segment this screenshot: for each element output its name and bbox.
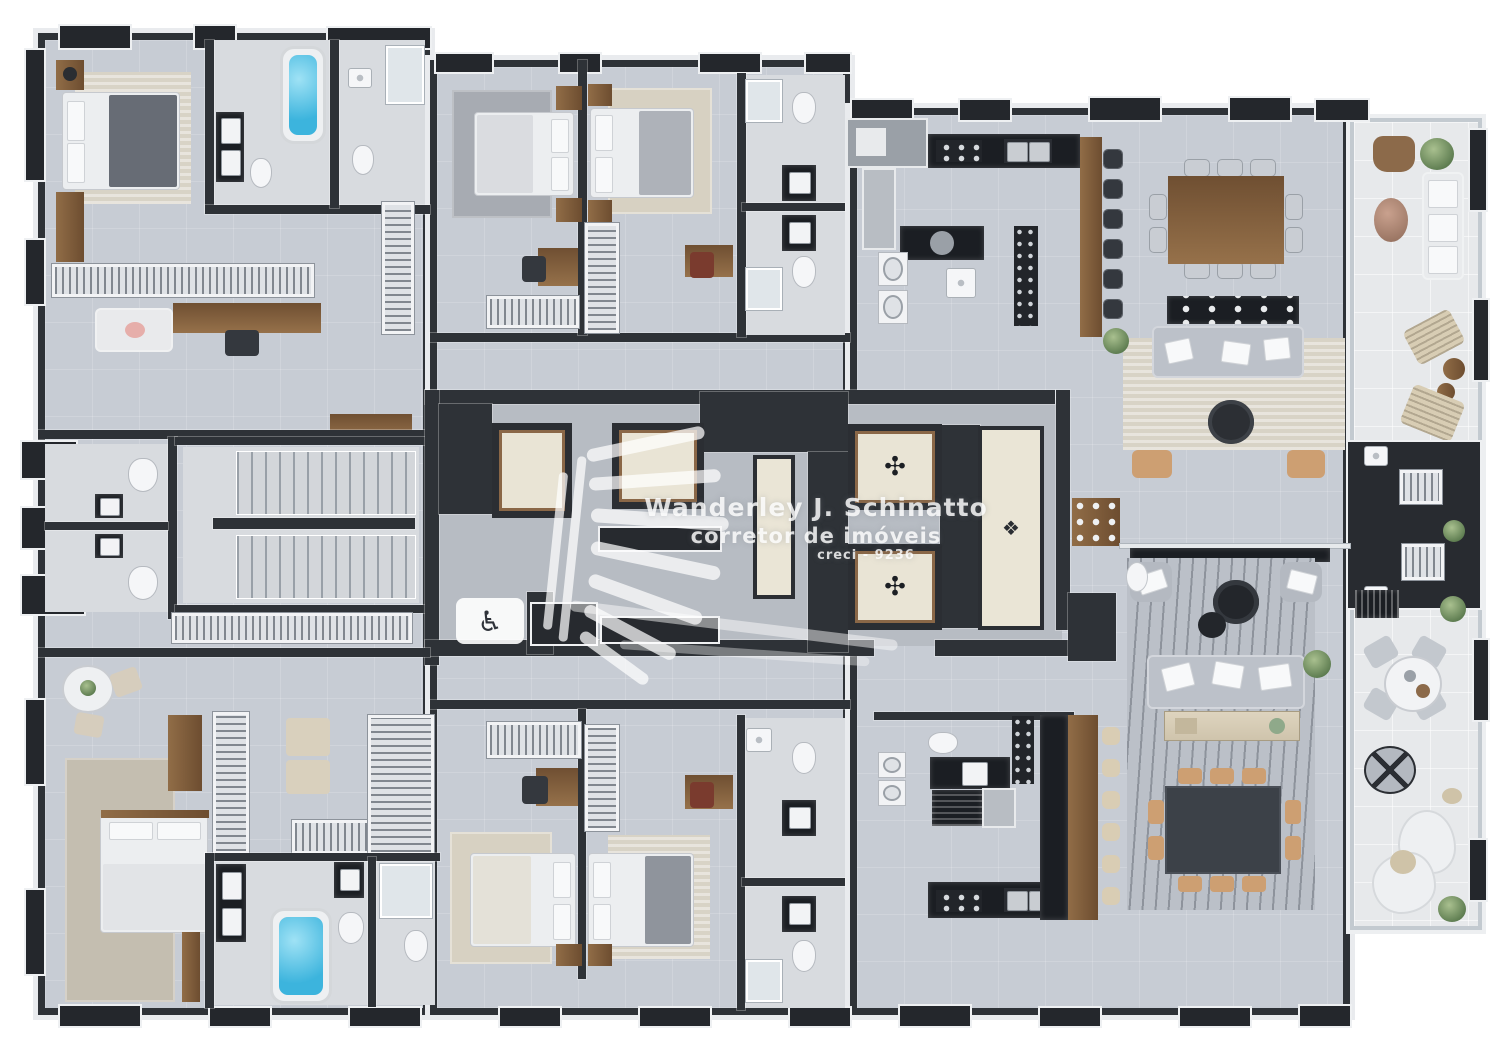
core-wall (700, 392, 848, 452)
wardrobe-rail (487, 722, 581, 758)
pot (930, 231, 954, 255)
sofa-pillow (1428, 214, 1458, 242)
plant (1438, 896, 1466, 922)
apartment-floor-plan: ✣ ✣ ❖ ♿ (0, 0, 1500, 1050)
wardrobe-rail (487, 296, 579, 328)
blanket (103, 864, 207, 930)
bath-water (279, 917, 323, 995)
sink (222, 908, 242, 936)
vanity (782, 800, 816, 836)
bar-stool (1104, 180, 1122, 198)
bed-master-bottomleft (100, 815, 208, 933)
pouf (286, 760, 330, 794)
wall (38, 648, 430, 657)
pillar (700, 54, 760, 72)
shower (386, 46, 424, 104)
pillar (1470, 130, 1486, 210)
wine-rack (1014, 226, 1038, 326)
bar-stool (1102, 727, 1120, 745)
dresser (56, 192, 84, 262)
pillow (595, 115, 613, 151)
utility-counter (930, 757, 1010, 789)
toilet (250, 158, 272, 188)
service-grill (1402, 544, 1444, 580)
pillar (500, 1008, 560, 1026)
daybed (95, 308, 173, 352)
plant (1303, 650, 1331, 678)
wardrobe-rail (213, 712, 249, 854)
sofa-pillow (1161, 662, 1196, 693)
sink (340, 869, 360, 891)
hall-motif-icon: ❖ (1002, 516, 1020, 540)
desk-chair (690, 782, 714, 808)
sofa (1147, 655, 1305, 709)
pillar (1040, 1008, 1100, 1026)
sink (221, 150, 241, 176)
pillar (790, 1008, 850, 1026)
lounge-chair (1280, 562, 1322, 602)
washer-drum (883, 257, 903, 281)
wall (205, 853, 440, 861)
dining-chair (1251, 262, 1275, 278)
pillow (593, 862, 611, 898)
bar-stool (1104, 300, 1122, 318)
plant (1103, 328, 1129, 354)
pillow (67, 101, 85, 141)
bar-back-counter (1040, 715, 1068, 920)
storage-cabinet (172, 613, 412, 643)
pillar (1180, 1008, 1250, 1026)
wardrobe-rail (52, 264, 314, 297)
bbq-grill (1355, 590, 1399, 618)
pillar (60, 26, 130, 48)
plant (1440, 596, 1466, 622)
console-decor (1269, 718, 1285, 734)
sink (962, 762, 988, 786)
vanity (216, 864, 246, 942)
pillar (1090, 98, 1160, 120)
kitchen-island (932, 790, 982, 826)
wall (430, 700, 850, 709)
blanket (639, 111, 691, 195)
shower (380, 864, 432, 918)
desk-chair (522, 256, 546, 282)
dryer (878, 290, 908, 324)
dining-chair (1148, 800, 1164, 824)
table-decor (1416, 684, 1430, 698)
pillow (593, 904, 611, 940)
wardrobe-rail (368, 715, 434, 855)
dining-chair (1286, 195, 1302, 219)
vanity (782, 165, 816, 201)
pouf (1442, 788, 1462, 804)
bathtub (280, 46, 326, 144)
dining-chair (1210, 768, 1234, 784)
sink (789, 172, 811, 194)
bar-stool (1102, 791, 1120, 809)
microwave (856, 128, 886, 156)
wall (175, 437, 425, 445)
wall (1068, 593, 1116, 661)
dining-chair (1178, 768, 1202, 784)
core-wall (808, 452, 848, 652)
dining-table (1168, 176, 1284, 264)
pillar (1316, 100, 1368, 120)
wall (45, 522, 168, 530)
dining-chair (1185, 262, 1209, 278)
hall-runner-small (753, 455, 795, 599)
toilet (404, 930, 428, 962)
toilet (792, 940, 816, 972)
pillow (109, 822, 153, 840)
dryer-drum (883, 295, 903, 319)
core-wall (940, 425, 980, 628)
chair (73, 712, 104, 739)
bed-topmiddle-2 (590, 108, 694, 198)
nightstand (588, 200, 612, 222)
wardrobe-rail (382, 202, 414, 334)
pouf (286, 718, 330, 756)
elevator-medallion-icon: ✣ (884, 572, 906, 602)
bath-water (289, 55, 317, 135)
stair-flight-lower (237, 536, 415, 598)
pillow (553, 904, 571, 940)
side-table (1443, 358, 1465, 380)
pillar (900, 1006, 970, 1026)
vanity (95, 534, 123, 558)
service-grill (1400, 470, 1442, 504)
sink (100, 538, 120, 556)
bed-topmiddle-1 (474, 112, 574, 196)
dining-chair (1185, 160, 1209, 176)
blanket (645, 856, 691, 944)
fridge (984, 790, 1014, 826)
armchair (1287, 450, 1325, 478)
bar-stool (1102, 855, 1120, 873)
elevator-cab (492, 423, 572, 518)
sink-basin (1007, 891, 1028, 911)
nightstand (56, 60, 84, 90)
wall (742, 203, 845, 211)
nightstand (556, 944, 582, 966)
washer (878, 252, 908, 286)
bed-bottommiddle-1 (470, 853, 576, 947)
sink (222, 872, 242, 900)
sideboard (1167, 296, 1299, 324)
sofa-pillow (1257, 663, 1292, 691)
wardrobe-rail (585, 223, 619, 333)
pillar (960, 100, 1010, 120)
pillar (1230, 98, 1290, 120)
bed-master-topleft (62, 92, 180, 190)
toilet (792, 742, 816, 774)
pink-pillow (125, 322, 145, 338)
bar-stool (1104, 240, 1122, 258)
nightstand (588, 84, 612, 106)
entry-hall-runner: ❖ (978, 426, 1044, 630)
bar-stool (1104, 270, 1122, 288)
dining-chair (1178, 876, 1202, 892)
pillar (1300, 1006, 1350, 1026)
wall (205, 40, 214, 212)
sink (221, 118, 241, 144)
dryer-drum (883, 785, 901, 801)
dining-chair (1242, 876, 1266, 892)
fridge (864, 170, 894, 248)
pillow (553, 862, 571, 898)
pillar (26, 240, 44, 304)
bench (182, 932, 200, 1002)
wine-rack (1012, 716, 1034, 784)
shower (746, 960, 782, 1002)
headboard (101, 810, 209, 818)
door-mat (532, 604, 596, 644)
coffee-table (1208, 400, 1254, 444)
elevator-medallion-icon: ✣ (884, 452, 906, 482)
core-wall (439, 404, 492, 514)
elevator-cab-medallion: ✣ (848, 424, 942, 510)
wardrobe-rail (292, 820, 374, 854)
core-console-table (1072, 498, 1120, 546)
dining-chair (1150, 195, 1166, 219)
core-wall (425, 390, 439, 665)
wall (330, 40, 339, 208)
pouf (1390, 850, 1416, 874)
wall (205, 853, 214, 1008)
dining-table-dark (1165, 786, 1281, 874)
accessible-mat: ♿ (456, 598, 524, 644)
vanity (95, 494, 123, 518)
dining-chair (1286, 228, 1302, 252)
toilet (792, 256, 816, 288)
wall (742, 878, 845, 886)
vanity (782, 896, 816, 932)
stove-burners (936, 890, 982, 912)
pillar (806, 54, 850, 72)
pillar (1474, 640, 1488, 720)
sink (789, 807, 811, 829)
sofa (1152, 326, 1304, 378)
utility-sink (946, 268, 976, 298)
sofa-pillow (1428, 246, 1458, 274)
desk-chair (690, 252, 714, 278)
wall (737, 715, 745, 1010)
service-sink (1364, 446, 1388, 466)
balcony-sofa (1422, 172, 1464, 280)
pillar (26, 890, 44, 974)
toilet (792, 92, 816, 124)
pillar (26, 700, 44, 784)
pillar (1474, 300, 1488, 380)
toilet (128, 566, 158, 600)
sofa-pillow (1428, 180, 1458, 208)
toilet (928, 732, 958, 754)
stove-burners (936, 140, 982, 162)
pillow (157, 822, 201, 840)
sofa-pillow (1221, 340, 1252, 366)
washer (878, 752, 906, 778)
balcony-armchair (1373, 136, 1415, 172)
sink (746, 728, 772, 752)
dresser (168, 715, 202, 791)
cocktail-table (1364, 746, 1416, 794)
pillow (1286, 569, 1318, 595)
kitchen-sink-double (1004, 139, 1052, 163)
wheelchair-icon: ♿ (477, 605, 502, 638)
dining-chair (1210, 876, 1234, 892)
kitchen-island (900, 226, 984, 260)
bar-stool (1104, 210, 1122, 228)
bar-stool (1102, 887, 1120, 905)
blanket (477, 115, 533, 193)
patio-table (1384, 656, 1442, 712)
elevator-cab-medallion: ✣ (848, 544, 942, 630)
bed-bottommiddle-2 (588, 853, 694, 947)
nightstand (556, 86, 582, 110)
bar-counter (1068, 715, 1098, 920)
desk-chair (522, 776, 548, 804)
sink (789, 903, 811, 925)
desk-chair (225, 330, 259, 356)
armchair (1132, 450, 1172, 478)
pillar (1470, 840, 1486, 900)
sink (100, 498, 120, 516)
floor-lamp (1126, 562, 1148, 592)
sink-basin (1007, 142, 1028, 162)
dryer (878, 780, 906, 806)
plant (1443, 520, 1465, 542)
pouf (1374, 198, 1408, 242)
console-table (1165, 712, 1299, 740)
bar-counter (1080, 137, 1102, 337)
bathtub (270, 908, 332, 1004)
shower (746, 80, 782, 122)
sofa-pillow (1164, 338, 1194, 365)
dining-chair (1251, 160, 1275, 176)
blanket (109, 95, 177, 187)
vanity (216, 112, 244, 182)
pillar (436, 54, 492, 72)
pillar (60, 1006, 140, 1026)
kitchen-cabinet (848, 120, 926, 166)
toilet (128, 458, 158, 492)
sofa-pillow (1263, 337, 1291, 362)
dining-chair (1285, 800, 1301, 824)
side-table (1198, 612, 1226, 638)
vanity (782, 215, 816, 251)
pillar (26, 50, 44, 180)
sink (789, 222, 811, 244)
dining-chair (1218, 262, 1242, 278)
table-decor (1404, 670, 1416, 682)
desk (173, 303, 321, 333)
plant (1420, 138, 1454, 170)
pillar (350, 1008, 420, 1026)
nightstand (556, 198, 582, 222)
sink-basin (1029, 142, 1050, 162)
door-mat (600, 528, 720, 550)
stair-rail (213, 518, 415, 529)
nightstand (588, 944, 612, 966)
bar-stool (1102, 823, 1120, 841)
washer-drum (883, 757, 901, 773)
pillow (551, 119, 569, 153)
stair-flight-upper (237, 452, 415, 514)
lamp (63, 67, 77, 81)
pillow (551, 157, 569, 191)
wall (368, 857, 376, 1007)
blanket (473, 856, 531, 944)
vanity (334, 862, 364, 898)
door-mat (602, 618, 718, 642)
elevator-cab (612, 423, 704, 509)
pillar (852, 100, 912, 120)
toilet (352, 145, 374, 175)
dining-chair (1150, 228, 1166, 252)
pillar (210, 1008, 270, 1026)
core-wall (935, 640, 1070, 656)
bar-stool (1102, 759, 1120, 777)
dining-chair (1242, 768, 1266, 784)
pillow (595, 157, 613, 193)
dining-chair (1148, 836, 1164, 860)
dining-chair (1285, 836, 1301, 860)
shower (746, 268, 782, 310)
pillar (640, 1008, 710, 1026)
dining-chair (1218, 160, 1242, 176)
wall (168, 437, 177, 619)
toilet (338, 912, 364, 944)
table-centerpiece (80, 680, 96, 696)
sink (348, 68, 372, 88)
pillow (67, 143, 85, 183)
wall (175, 605, 425, 613)
wardrobe-rail (585, 725, 619, 831)
console-decor (1175, 718, 1197, 734)
sofa-pillow (1211, 661, 1245, 690)
bar-stool (1104, 150, 1122, 168)
